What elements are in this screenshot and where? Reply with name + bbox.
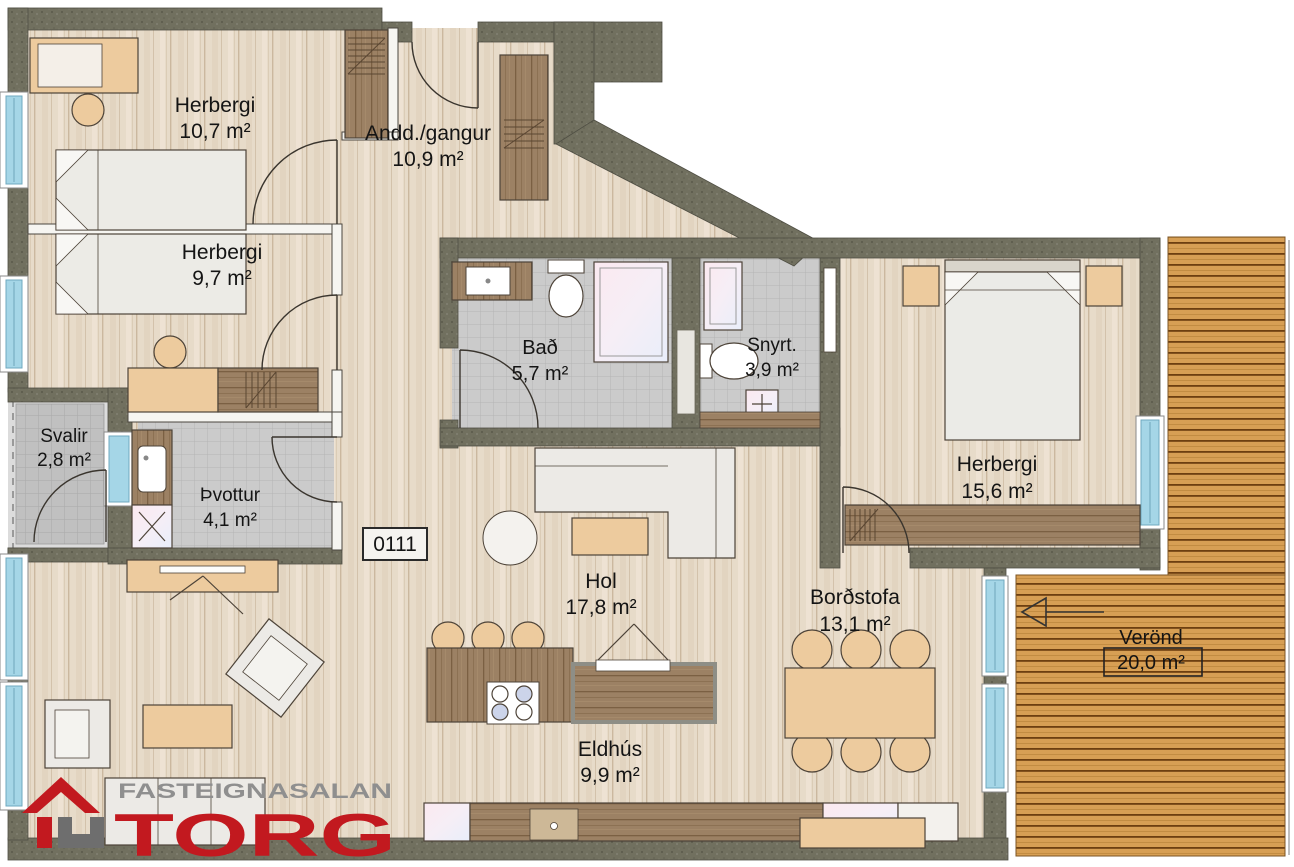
label-bordstofa-name: Borðstofa: [810, 586, 900, 609]
label-herbergi-2-name: Herbergi: [182, 241, 263, 264]
label-verond-area: 20,0 m²: [1117, 652, 1185, 674]
floor-plan-drawing: Herbergi 10,7 m² Andd./gangur 10,9 m² He…: [0, 0, 1294, 867]
label-herbergi-1-name: Herbergi: [175, 94, 256, 117]
label-thvottur-area: 4,1 m²: [203, 510, 257, 531]
window-living-left-1: [0, 554, 28, 680]
label-svalir-name: Svalir: [40, 426, 88, 447]
label-hol-name: Hol: [585, 570, 617, 593]
label-bad-area: 5,7 m²: [512, 363, 569, 385]
label-hol-area: 17,8 m²: [565, 596, 636, 619]
floor-plan-page: Herbergi 10,7 m² Andd./gangur 10,9 m² He…: [0, 0, 1294, 867]
balcony-door-window: [104, 432, 134, 506]
window-dining-right: [982, 684, 1008, 792]
label-thvottur-name: Þvottur: [200, 485, 261, 506]
window-bedroom1-left: [0, 92, 28, 188]
label-herbergi-3-name: Herbergi: [957, 453, 1038, 476]
unit-number: 0111: [373, 533, 417, 556]
label-anddyri-name: Andd./gangur: [365, 122, 491, 145]
label-snyrt-name: Snyrt.: [747, 335, 797, 356]
label-eldhus-name: Eldhús: [578, 738, 642, 761]
unit-number-badge: 0111: [363, 528, 427, 560]
deck-door-window: [982, 576, 1008, 676]
label-snyrt-area: 3,9 m²: [745, 360, 799, 381]
label-svalir-area: 2,8 m²: [37, 450, 91, 471]
label-herbergi-3-area: 15,6 m²: [961, 480, 1032, 503]
window-living-left-2: [0, 682, 28, 810]
window-bedroom2-left: [0, 276, 28, 372]
label-bordstofa-area: 13,1 m²: [819, 613, 890, 636]
label-herbergi-2-area: 9,7 m²: [192, 267, 252, 290]
label-bad-name: Bað: [522, 337, 558, 359]
logo-main-text: TORG: [114, 802, 396, 867]
label-herbergi-1-area: 10,7 m²: [179, 120, 250, 143]
label-anddyri-area: 10,9 m²: [392, 148, 463, 171]
label-eldhus-area: 9,9 m²: [580, 764, 640, 787]
logo-top-text: FASTEIGNASALAN: [118, 780, 392, 803]
label-verond-name: Verönd: [1119, 627, 1182, 649]
